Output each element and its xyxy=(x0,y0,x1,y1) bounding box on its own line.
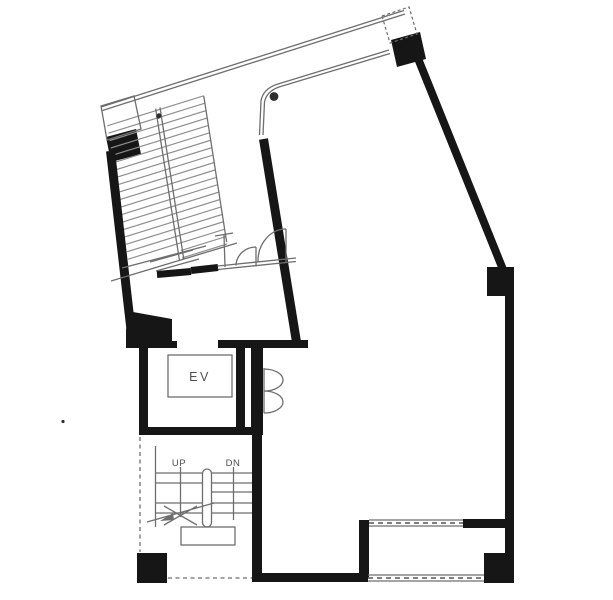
stray-speck xyxy=(61,420,64,423)
shaft-wall-east xyxy=(251,344,263,430)
elevator-top-wall-left xyxy=(139,341,177,348)
elevator-label: EV xyxy=(189,370,211,384)
bottom-wall xyxy=(252,573,368,582)
column-bottom-left xyxy=(137,553,167,583)
partition-corner-dot xyxy=(270,92,279,101)
understair-wall-a xyxy=(157,272,191,275)
elevator-left-wall xyxy=(139,345,148,433)
stairs-up-label: UP xyxy=(172,458,186,469)
understair-wall-b xyxy=(191,268,218,271)
stairs-down-label: DN xyxy=(226,458,241,469)
balcony-top-wall xyxy=(463,519,507,528)
balcony-left-wall xyxy=(359,520,369,578)
lower-stair-divider xyxy=(203,469,212,527)
floor-plan-canvas: EV UP DN xyxy=(0,0,613,600)
shaft-wall-west xyxy=(236,344,245,430)
background xyxy=(0,0,613,600)
stair-east-wall xyxy=(252,430,262,582)
right-wall xyxy=(505,290,514,583)
